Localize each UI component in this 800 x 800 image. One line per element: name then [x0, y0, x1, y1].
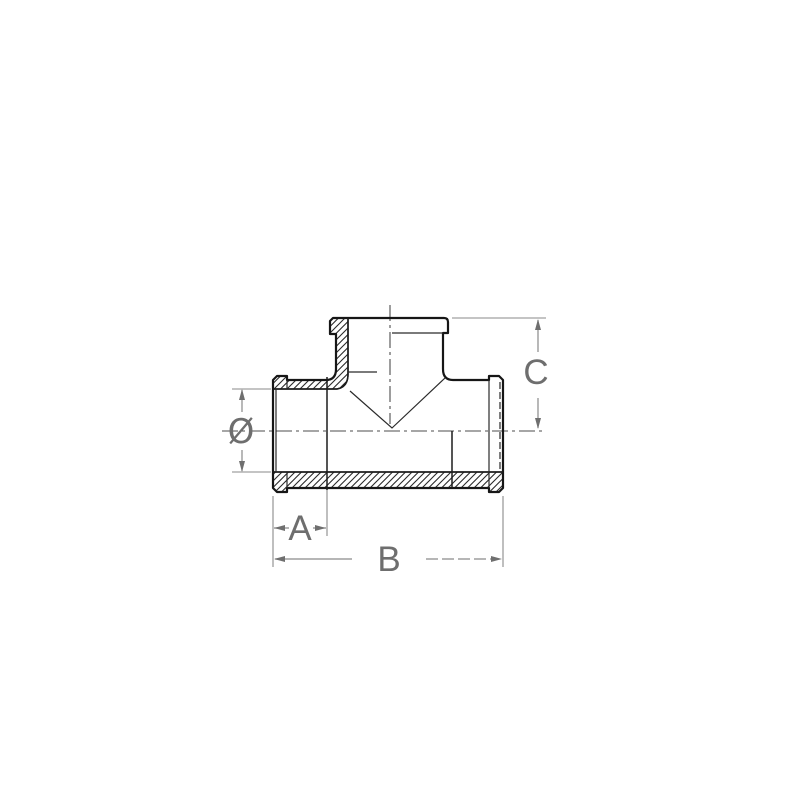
- tee-fitting-technical-drawing: Ø A B C: [0, 0, 800, 800]
- a-label: A: [288, 509, 312, 548]
- fitting-body: [273, 318, 503, 492]
- bore-intersection-lines: [350, 378, 445, 428]
- arrow-right-icon: [315, 525, 326, 531]
- fitting-interior-lines: [273, 318, 503, 490]
- arrow-down-icon: [239, 461, 245, 472]
- centerlines: [222, 305, 546, 431]
- arrow-right-icon: [491, 556, 502, 562]
- diameter-label: Ø: [228, 412, 255, 452]
- drawing-canvas: Ø A B C: [0, 0, 800, 800]
- arrow-up-icon: [239, 389, 245, 400]
- arrow-up-icon: [535, 319, 541, 330]
- section-hatching: [273, 318, 503, 492]
- b-label: B: [377, 540, 400, 579]
- arrow-left-icon: [274, 525, 285, 531]
- fitting-outer-profile: [273, 318, 503, 492]
- c-label: C: [523, 353, 548, 392]
- arrow-left-icon: [274, 556, 285, 562]
- arrow-down-icon: [535, 418, 541, 429]
- dimension-a: A: [274, 490, 327, 548]
